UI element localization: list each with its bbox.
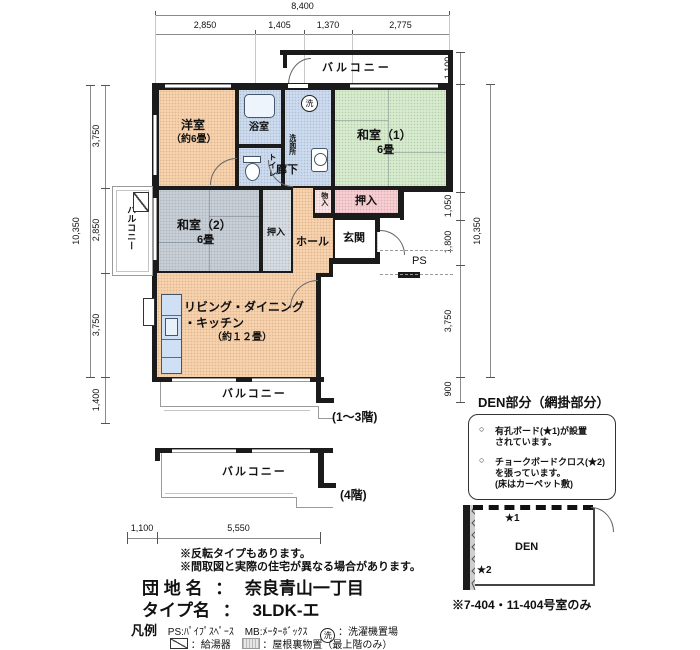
wall bbox=[448, 50, 453, 192]
dim-top-total: 8,400 bbox=[155, 1, 450, 11]
balcony-line bbox=[296, 497, 297, 507]
balcony-line bbox=[165, 493, 293, 494]
dimension-tick bbox=[101, 188, 110, 189]
dimension-tick bbox=[456, 84, 465, 85]
extension-line bbox=[155, 15, 156, 84]
meter-box bbox=[143, 298, 155, 326]
wall bbox=[400, 188, 453, 192]
balcony-lower-label: バルコニー bbox=[222, 388, 287, 402]
room-washroom-label: 洗面所 bbox=[287, 134, 296, 155]
note-line2: ※間取図と実際の住宅が異なる場合があります。 bbox=[180, 558, 421, 574]
kitchen-sink-icon bbox=[165, 318, 178, 336]
balcony-line bbox=[161, 497, 297, 498]
room-entrance-label: 玄関 bbox=[343, 232, 365, 246]
toilet-icon-bowl bbox=[245, 163, 260, 181]
closet-oshiire-washitsu2: 押入 bbox=[261, 188, 293, 273]
den-bullet1-marker: ○ bbox=[479, 424, 484, 434]
dimension-tick bbox=[101, 423, 110, 424]
balcony4-wall bbox=[318, 448, 324, 488]
dim-left-seg1: 3,750 bbox=[91, 118, 101, 154]
dim-right-total: 10,350 bbox=[472, 209, 482, 253]
room-washitsu1: 和室（1） 6畳 bbox=[333, 88, 448, 188]
type-label: タイプ名 bbox=[142, 601, 210, 620]
dimension-tick bbox=[456, 192, 465, 193]
closet-monoire: 物入 bbox=[313, 188, 333, 215]
window bbox=[172, 378, 236, 382]
legend-row2: ：給湯器 ：屋根裏物置（最上階のみ） bbox=[170, 636, 392, 650]
den-bullet2-line3: (床はカーペット敷) bbox=[495, 477, 573, 490]
dimension-tick bbox=[456, 52, 465, 53]
den-note-box: ○ 有孔ボード(★1)が設置 されています。 ○ チョークボードクロス(★2) … bbox=[468, 414, 616, 500]
dimension-tick bbox=[486, 84, 495, 85]
room-entrance: 玄関 bbox=[333, 218, 377, 260]
den-label: DEN bbox=[515, 541, 538, 553]
legend-heater-symbol bbox=[170, 638, 188, 649]
dimension-tick bbox=[86, 85, 95, 86]
legend-attic: ：屋根裏物置（最上階のみ） bbox=[262, 640, 392, 650]
ldk-label-line2: ・キッチン bbox=[184, 316, 244, 331]
den-bullet1-line2: されています。 bbox=[495, 435, 557, 448]
floor-4-note: (4階) bbox=[340, 486, 367, 503]
balcony-4f-label: バルコニー bbox=[222, 466, 287, 480]
legend-attic-symbol bbox=[242, 638, 260, 649]
dimension-tick bbox=[127, 532, 128, 544]
balcony4-wall bbox=[324, 483, 336, 488]
den-star1: ★1 bbox=[505, 513, 520, 524]
type-name-row: タイプ名 ： 3LDK-エ bbox=[142, 596, 320, 621]
balcony-line bbox=[318, 406, 319, 418]
dimension-line bbox=[105, 85, 106, 423]
dim-right-seg3: 1,050 bbox=[443, 188, 453, 224]
room-yoshitsu-name: 洋室 bbox=[181, 118, 205, 133]
washbasin-bowl-icon bbox=[314, 153, 327, 166]
den-room-note: ※7-404・11-404号室のみ bbox=[452, 596, 591, 613]
dimension-tick bbox=[101, 377, 110, 378]
balcony-door-arc bbox=[288, 58, 311, 85]
room-washitsu1-size: 6畳 bbox=[377, 144, 394, 158]
toilet-icon-tank bbox=[243, 156, 261, 163]
ldk-label-size: （約１２畳） bbox=[212, 332, 272, 345]
dim-left-seg2: 2,850 bbox=[91, 212, 101, 248]
room-washitsu2-name: 和室（2） bbox=[177, 218, 232, 233]
balcony-line bbox=[164, 410, 310, 411]
dim-bottom-seg1: 1,100 bbox=[127, 523, 157, 533]
dimension-tick bbox=[320, 532, 321, 544]
window bbox=[172, 449, 236, 453]
den-bullet2-marker: ○ bbox=[479, 455, 484, 465]
extension-line bbox=[449, 15, 450, 52]
room-bath: 浴室 bbox=[237, 88, 283, 146]
den-star2: ★2 bbox=[477, 565, 492, 576]
bathtub-icon bbox=[244, 94, 275, 118]
balcony-left: バルコニー bbox=[112, 186, 153, 276]
dimension-tick bbox=[101, 85, 110, 86]
dim-top-seg1: 2,850 bbox=[155, 20, 255, 30]
dimension-tick bbox=[86, 377, 95, 378]
dimension-line bbox=[155, 34, 450, 35]
ps-label: PS bbox=[412, 255, 427, 269]
type-value: 3LDK-エ bbox=[252, 601, 319, 620]
laundry-symbol: 洗 bbox=[301, 95, 318, 112]
dimension-line bbox=[127, 538, 320, 539]
balcony-line bbox=[296, 507, 333, 508]
room-washitsu1-name: 和室（1） bbox=[357, 128, 412, 143]
wall bbox=[283, 50, 287, 68]
closet-oshiire-washitsu2-label: 押入 bbox=[267, 227, 285, 238]
dim-left-seg3: 3,750 bbox=[91, 307, 101, 343]
ldk-label-line1: リビング・ダイニング bbox=[184, 300, 304, 315]
room-bath-label: 浴室 bbox=[249, 122, 269, 135]
dim-bottom-seg2: 5,550 bbox=[157, 523, 320, 533]
dim-top-seg4: 2,775 bbox=[352, 20, 449, 30]
dim-top-seg3: 1,370 bbox=[304, 20, 352, 30]
floor-plan-page: 8,400 2,850 1,405 1,370 2,775 10,350 3,7… bbox=[0, 0, 700, 650]
balcony-line bbox=[161, 453, 162, 497]
dimension-tick bbox=[486, 377, 495, 378]
tatami-line bbox=[209, 216, 259, 217]
dimension-tick bbox=[101, 273, 110, 274]
balcony-line bbox=[160, 382, 161, 407]
dim-left-seg4: 1,400 bbox=[91, 382, 101, 418]
den-dashed-wall bbox=[473, 505, 593, 510]
legend-title: 凡例 bbox=[131, 623, 157, 638]
room-yoshitsu-size: （約6畳） bbox=[171, 134, 217, 147]
extension-line bbox=[352, 34, 353, 84]
room-washitsu2: 和室（2） 6畳 bbox=[157, 188, 261, 273]
floors-1-3-note: (1〜3階) bbox=[332, 408, 377, 425]
dimension-tick bbox=[456, 377, 465, 378]
wall bbox=[280, 50, 453, 55]
extension-line bbox=[255, 34, 256, 84]
window bbox=[252, 378, 310, 382]
hall-label: ホール bbox=[296, 236, 329, 250]
counter-line bbox=[162, 339, 181, 340]
tatami-line bbox=[388, 152, 446, 153]
balcony-wall bbox=[321, 398, 334, 403]
balcony4-wall bbox=[155, 448, 160, 461]
dimension-line bbox=[155, 15, 450, 16]
room-washitsu2-size: 6畳 bbox=[197, 234, 214, 248]
dim-right-seg6: 900 bbox=[443, 371, 453, 407]
dimension-tick bbox=[157, 532, 158, 544]
den-title: DEN部分（網掛部分） bbox=[478, 392, 609, 411]
legend-heater: ：給湯器 bbox=[191, 640, 231, 650]
balcony-line bbox=[160, 406, 319, 407]
tatami-line bbox=[335, 120, 388, 121]
water-heater-symbol bbox=[133, 192, 149, 212]
den-door-arc bbox=[591, 507, 614, 532]
dimension-tick bbox=[456, 265, 465, 266]
counter-line bbox=[162, 357, 181, 358]
balcony-top-label: バルコニー bbox=[322, 62, 392, 76]
closet-monoire-label: 物入 bbox=[319, 192, 328, 206]
dimension-tick bbox=[456, 220, 465, 221]
counter-line bbox=[162, 315, 181, 316]
dim-right-seg5: 3,750 bbox=[443, 303, 453, 339]
den-diagram: ★1 DEN ★2 bbox=[463, 505, 605, 590]
den-left-wall bbox=[463, 505, 470, 590]
kitchen-counter bbox=[161, 294, 182, 374]
window bbox=[252, 449, 310, 453]
type-colon: ： bbox=[223, 601, 240, 620]
dimension-tick bbox=[456, 402, 465, 403]
dim-top-seg2: 1,405 bbox=[255, 20, 304, 30]
dimension-line bbox=[460, 52, 461, 402]
closet-oshiire-upper: 押入 bbox=[333, 188, 400, 215]
dimension-line bbox=[490, 84, 491, 377]
closet-oshiire-upper-label: 押入 bbox=[355, 195, 377, 209]
laundry-symbol-text: 洗 bbox=[306, 98, 314, 109]
dim-left-total: 10,350 bbox=[71, 209, 81, 253]
